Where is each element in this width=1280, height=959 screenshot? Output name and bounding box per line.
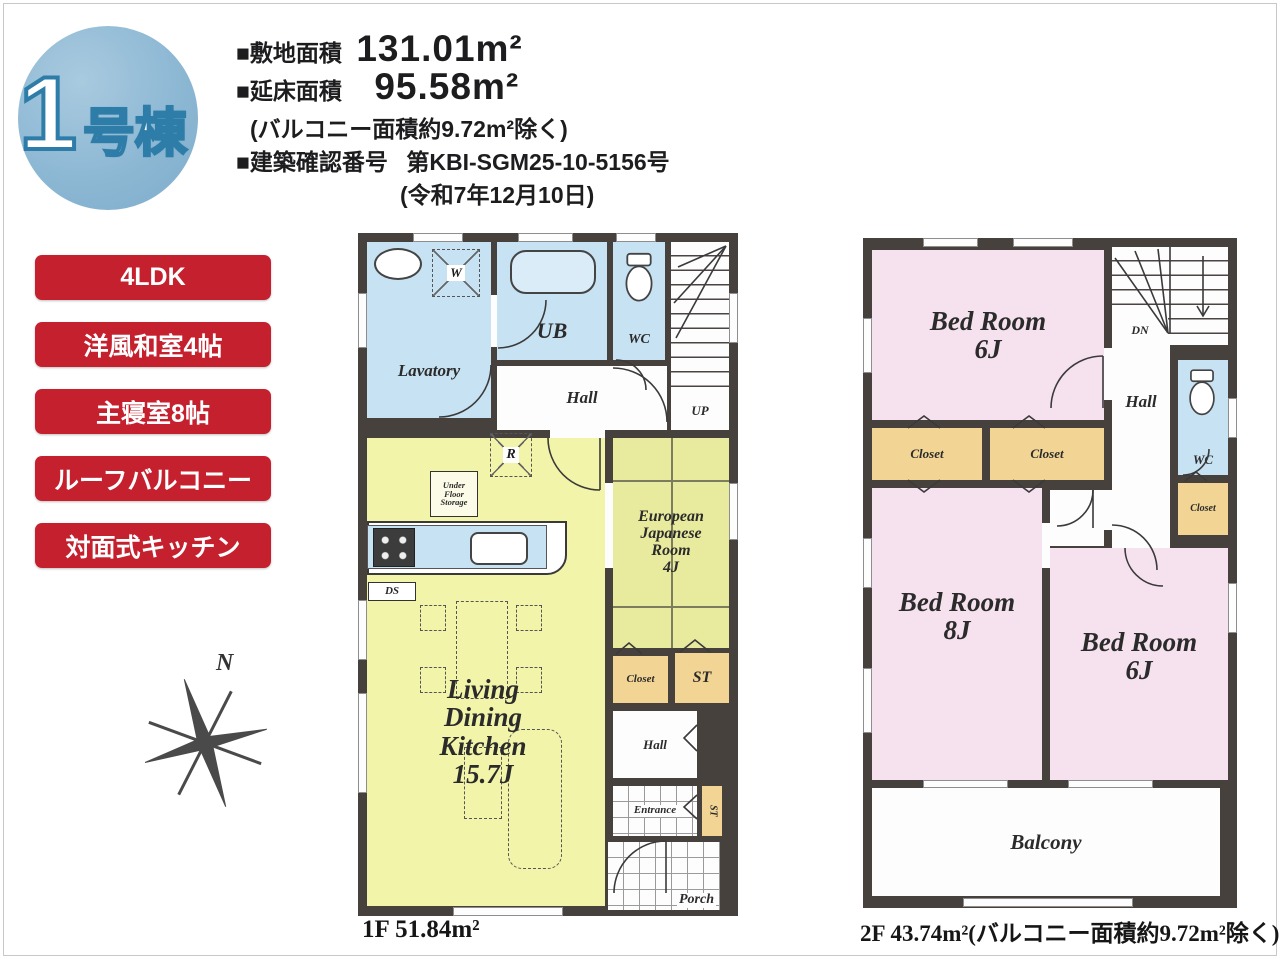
toilet-icon <box>621 251 657 307</box>
closet-1f: Closet <box>613 656 668 703</box>
ldk-line4: 15.7J <box>403 760 563 788</box>
lavatory-label: Lavatory <box>398 362 460 380</box>
door-opening <box>491 295 497 347</box>
ej-room-label: European Japanese Room 4J <box>638 509 704 576</box>
window-mark <box>453 907 563 916</box>
bedroom-b-label: Bed Room 8J <box>899 588 1015 645</box>
feature-badge-counter-kitchen: 対面式キッチン <box>35 523 271 568</box>
balcony-note: (バルコニー面積約9.72m²除く) <box>250 110 568 144</box>
under-floor-storage: Under Floor Storage <box>430 471 478 517</box>
kitchen-sink-icon <box>470 532 528 565</box>
window-mark <box>963 898 1133 907</box>
toilet-icon <box>1185 366 1219 422</box>
storage-1f-label: ST <box>693 670 712 687</box>
porch-label: Porch <box>677 893 716 908</box>
site-area-value: 131.01m² <box>356 28 522 69</box>
chair <box>420 605 446 631</box>
feature-badge-western-japanese-room: 洋風和室4帖 <box>35 322 271 367</box>
site-area-label: ■敷地面積 <box>236 40 342 66</box>
refrigerator-icon: R <box>490 433 532 477</box>
sink-icon <box>374 248 422 280</box>
ldk-line2: Dining <box>403 703 563 731</box>
building-number: 1 <box>19 62 77 166</box>
ufs-line3: Storage <box>441 498 468 507</box>
confirmation-label: ■建築確認番号 <box>236 149 388 175</box>
door-opening <box>605 483 613 568</box>
door-opening <box>1042 523 1050 568</box>
closet-1f-label: Closet <box>626 674 654 686</box>
up-label: UP <box>691 404 708 418</box>
feature-badge-4ldk: 4LDK <box>35 255 271 300</box>
ldk-line1: Living <box>403 675 563 703</box>
door-opening <box>1104 348 1112 400</box>
door-opening <box>1104 490 1112 530</box>
confirmation-date: (令和7年12月10日) <box>400 176 594 210</box>
floorplan-2f: Bed Room 6J DN Hall WC Closet Closet Clo… <box>863 238 1237 908</box>
hall-extension <box>1050 490 1104 546</box>
feature-badge-master-bedroom: 主寝室8帖 <box>35 389 271 434</box>
bedroom-b-size: 8J <box>899 616 1015 644</box>
window-mark <box>358 600 367 660</box>
sliding-door-mark <box>923 780 1008 788</box>
stove-icon <box>373 528 415 567</box>
entrance: Entrance <box>613 786 697 836</box>
window-mark <box>518 233 573 242</box>
closet-2f-left-label: Closet <box>910 447 943 461</box>
floor1-area-label: 1F 51.84m² <box>362 916 480 944</box>
ds-label: DS <box>385 586 399 598</box>
building-number-badge: 1 号棟 <box>18 26 198 210</box>
floor-area-line: ■延床面積 95.58m² <box>236 66 519 108</box>
balcony-label: Balcony <box>1010 831 1081 853</box>
washer-label: W <box>447 265 465 281</box>
balcony: Balcony <box>872 788 1220 896</box>
fridge-label: R <box>503 447 518 463</box>
bedroom-b-name: Bed Room <box>899 588 1015 616</box>
room-european-japanese: European Japanese Room 4J <box>613 438 729 648</box>
window-mark <box>616 233 656 242</box>
closet-2f-small-label: Closet <box>1190 504 1216 515</box>
ej-line1: European <box>638 509 704 526</box>
entrance-label: Entrance <box>632 805 678 817</box>
stairs-1f <box>671 242 729 392</box>
ds-box: DS <box>368 582 416 601</box>
ej-line3: Room <box>638 543 704 560</box>
window-mark <box>729 293 738 343</box>
window-mark <box>729 483 738 540</box>
tatami-line-h2 <box>613 606 729 608</box>
window-mark <box>1228 583 1237 633</box>
window-mark <box>923 238 978 247</box>
window-mark <box>863 318 872 373</box>
under-floor-storage-label: Under Floor Storage <box>441 481 468 508</box>
confirmation-value: 第KBI-SGM25-10-5156号 <box>406 149 669 175</box>
ub-label: UB <box>537 319 568 342</box>
window-mark <box>358 293 367 348</box>
stairs-dn-area: DN <box>1112 318 1168 342</box>
tatami-line-h1 <box>613 480 729 482</box>
room-bedroom-b: Bed Room 8J <box>872 488 1042 780</box>
room-bedroom-a: Bed Room 6J <box>872 250 1104 420</box>
floor-area-label: ■延床面積 <box>236 78 342 104</box>
storage-entrance: ST <box>702 786 722 836</box>
ldk-label: Living Dining Kitchen 15.7J <box>403 675 563 788</box>
window-mark <box>863 668 872 733</box>
bedroom-a-size: 6J <box>930 335 1046 363</box>
hall-entrance-label: Hall <box>643 738 667 752</box>
compass-north-text: N <box>215 650 235 676</box>
dn-label: DN <box>1131 324 1148 337</box>
window-mark <box>863 538 872 588</box>
window-mark <box>358 693 367 793</box>
hall-1f-label: Hall <box>566 389 597 407</box>
door-opening <box>550 430 605 438</box>
window-mark <box>1228 398 1237 438</box>
bedroom-c-name: Bed Room <box>1081 628 1197 656</box>
wc-1f-label: WC <box>628 333 650 348</box>
floorplan-flyer: 1 号棟 ■敷地面積 131.01m² ■延床面積 95.58m² (バルコニー… <box>0 0 1280 959</box>
bathtub-icon <box>510 250 596 294</box>
confirmation-line: ■建築確認番号 第KBI-SGM25-10-5156号 <box>236 143 670 177</box>
ej-line2: Japanese <box>638 526 704 543</box>
washing-machine-icon: W <box>432 249 480 297</box>
window-mark <box>413 233 463 242</box>
building-number-suffix: 号棟 <box>83 108 187 160</box>
hall-2f-label: Hall <box>1125 393 1156 411</box>
closet-2f-small: Closet <box>1178 483 1228 535</box>
stairs-up-area: UP <box>671 392 729 430</box>
storage-1f: ST <box>675 653 729 703</box>
hall-entrance: Hall <box>613 711 697 778</box>
window-mark <box>1013 238 1073 247</box>
bedroom-c-label: Bed Room 6J <box>1081 628 1197 685</box>
feature-badge-roof-balcony: ルーフバルコニー <box>35 456 271 501</box>
floorplan-1f: Lavatory UB WC UP Hall European Japanese… <box>358 233 738 916</box>
bedroom-a-name: Bed Room <box>930 307 1046 335</box>
closet-2f-left: Closet <box>872 428 982 480</box>
storage-entrance-label: ST <box>707 805 718 817</box>
bedroom-c-size: 6J <box>1081 656 1197 684</box>
floor2-area-label: 2F 43.74m²(バルコニー面積約9.72m²除く) <box>860 914 1279 948</box>
ej-line4: 4J <box>638 560 704 577</box>
closet-2f-mid: Closet <box>990 428 1104 480</box>
bedroom-a-label: Bed Room 6J <box>930 307 1046 364</box>
closet-2f-mid-label: Closet <box>1030 447 1063 461</box>
porch: Porch <box>608 842 720 910</box>
ldk-line3: Kitchen <box>403 732 563 760</box>
room-bedroom-c: Bed Room 6J <box>1050 548 1228 780</box>
sliding-door-mark <box>1068 780 1153 788</box>
floor-area-value: 95.58m² <box>374 66 519 107</box>
hall-1f: Hall <box>497 366 667 430</box>
chair <box>516 605 542 631</box>
hall-2f: Hall <box>1112 345 1170 570</box>
compass-icon: N <box>120 648 290 818</box>
site-area-line: ■敷地面積 131.01m² <box>236 28 523 70</box>
wc-2f-label: WC <box>1193 453 1213 467</box>
